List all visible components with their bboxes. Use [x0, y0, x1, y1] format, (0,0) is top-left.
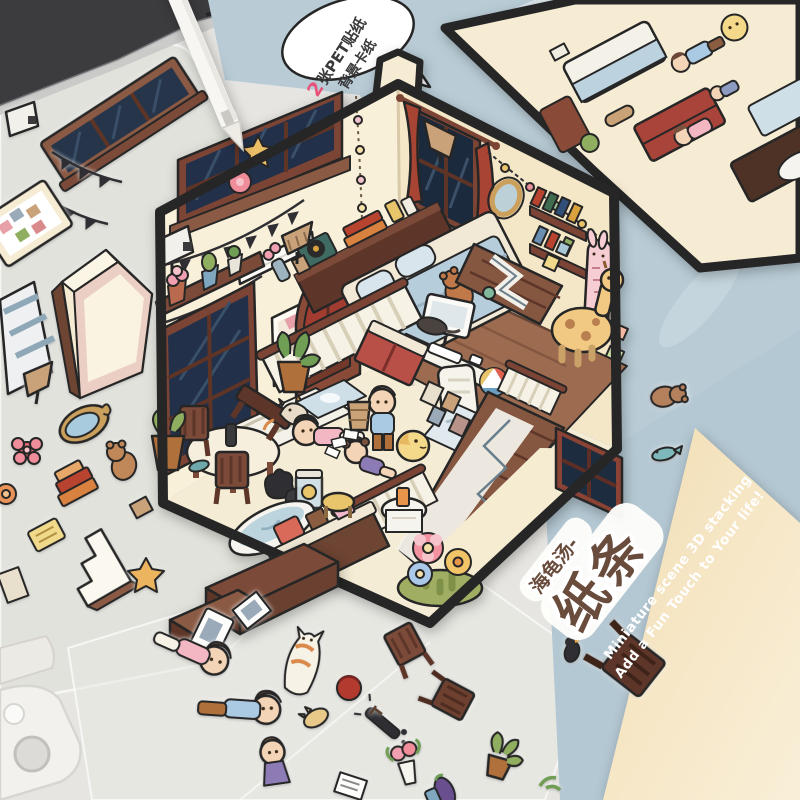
cactus-pot-2	[228, 246, 242, 276]
cactus-pot-1	[202, 253, 218, 290]
boy-standing	[369, 386, 395, 450]
yellow-chick	[397, 431, 429, 461]
drink-glass	[397, 488, 409, 506]
product-photo: 2张PET贴纸 背景卡纸	[0, 0, 800, 800]
flower-yellow	[445, 549, 471, 575]
green-ball	[483, 287, 495, 299]
flower-pink	[413, 533, 443, 563]
flower-blue	[408, 562, 432, 586]
sticker-flower-orange	[0, 484, 16, 504]
bottle	[226, 424, 236, 446]
scene-svg: 2张PET贴纸 背景卡纸	[0, 0, 800, 800]
wooden-bucket	[348, 402, 370, 430]
sticker-red-ball	[337, 676, 361, 700]
tape-roll	[15, 737, 49, 771]
